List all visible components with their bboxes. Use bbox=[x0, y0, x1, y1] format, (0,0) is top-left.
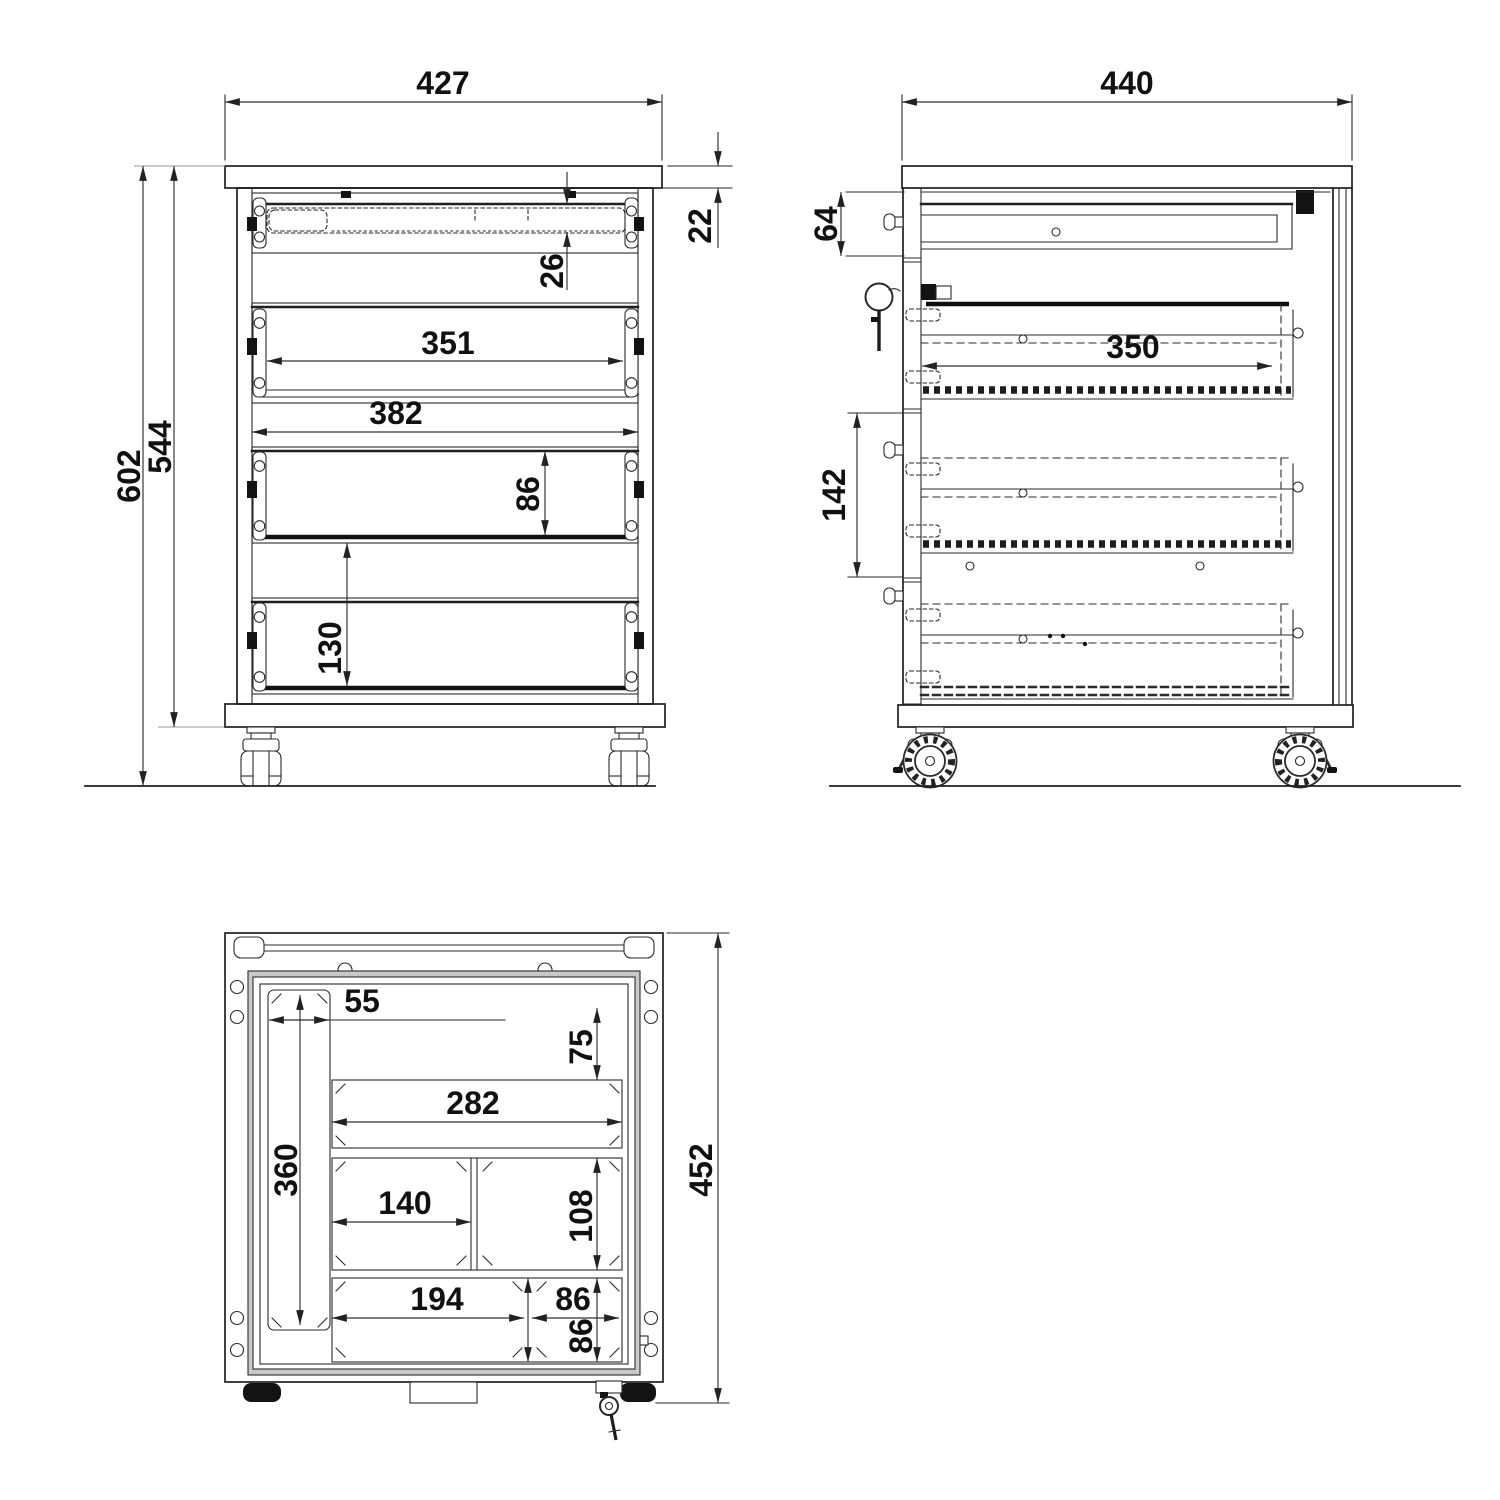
dim-front-drawer-pitch: 130 bbox=[312, 543, 348, 686]
side-base bbox=[898, 705, 1353, 727]
foot-pad bbox=[620, 1383, 656, 1402]
dim-label-top-slot-length: 360 bbox=[268, 1143, 304, 1196]
dim-label-top-140: 140 bbox=[378, 1185, 431, 1221]
dim-label-side-compartment-height: 142 bbox=[816, 468, 852, 521]
side-top-panel bbox=[902, 166, 1352, 188]
dim-label-side-depth: 440 bbox=[1100, 65, 1153, 101]
dim-label-front-drawer-pitch: 130 bbox=[312, 621, 348, 674]
top-view: 55 360 75 282 14 bbox=[225, 933, 729, 1440]
pen-tray-hidden-outline bbox=[267, 208, 625, 233]
screw-hole bbox=[1196, 562, 1204, 570]
caster-icon bbox=[609, 727, 649, 786]
dim-top-overall-depth: 452 bbox=[656, 933, 729, 1403]
dim-label-front-drawer-height: 86 bbox=[510, 476, 546, 512]
dim-label-top-slot-width: 55 bbox=[344, 983, 380, 1019]
foot-pad bbox=[243, 1383, 281, 1402]
caster-icon bbox=[241, 727, 281, 786]
lock-with-key-icon bbox=[596, 1381, 622, 1440]
dim-front-panel-thickness: 22 bbox=[656, 132, 732, 248]
side-drawer-box-1: 350 bbox=[906, 304, 1303, 399]
side-front-strip bbox=[903, 188, 921, 704]
technical-drawing-page: 427 602 544 22 bbox=[0, 0, 1500, 1500]
caster-icon bbox=[893, 727, 957, 788]
lock-icon bbox=[921, 284, 951, 300]
knob-icon bbox=[884, 214, 903, 230]
key-icon bbox=[866, 284, 901, 352]
dim-label-top-86w: 86 bbox=[555, 1281, 591, 1317]
dim-label-front-opening-width: 382 bbox=[369, 395, 422, 431]
front-top-panel bbox=[225, 166, 662, 188]
dim-label-front-carcass-height: 544 bbox=[142, 420, 178, 474]
side-back-panel bbox=[1333, 188, 1352, 704]
dim-label-top-depth: 452 bbox=[683, 1143, 719, 1196]
side-drawer-box-3 bbox=[906, 604, 1303, 699]
dim-label-top-108: 108 bbox=[563, 1189, 599, 1242]
dim-label-front-width: 427 bbox=[416, 65, 469, 101]
side-pencil-drawer bbox=[921, 190, 1330, 249]
front-drawer-3: 86 bbox=[247, 447, 644, 543]
dim-front-opening-width: 382 bbox=[252, 395, 638, 432]
knob-icon bbox=[884, 588, 903, 604]
front-pencil-drawer bbox=[247, 191, 644, 253]
dim-label-side-pencil-height: 64 bbox=[808, 206, 844, 242]
handle-notch bbox=[410, 1382, 477, 1403]
dim-label-top-86h: 86 bbox=[563, 1318, 599, 1354]
front-view: 427 602 544 22 bbox=[85, 65, 732, 786]
dim-side-compartment-height: 142 bbox=[816, 413, 903, 577]
dim-label-top-282: 282 bbox=[446, 1085, 499, 1121]
dim-side-overall-depth: 440 bbox=[902, 65, 1352, 160]
caster-icon bbox=[1274, 727, 1338, 788]
dim-label-top-front-margin: 75 bbox=[563, 1029, 599, 1065]
dim-label-side-drawer-depth: 350 bbox=[1106, 329, 1159, 365]
dim-label-front-panel-thickness: 22 bbox=[682, 208, 718, 244]
drawing-canvas: 427 602 544 22 bbox=[0, 0, 1500, 1500]
dim-label-front-drawer-width: 351 bbox=[421, 325, 474, 361]
side-view: 440 bbox=[808, 65, 1460, 788]
knob-icon bbox=[884, 442, 903, 458]
side-drawer-box-2 bbox=[906, 458, 1303, 553]
front-drawer-4 bbox=[247, 598, 644, 694]
front-drawer-2: 351 bbox=[247, 303, 644, 403]
front-base bbox=[225, 704, 665, 727]
dim-label-front-tray-depth: 26 bbox=[534, 253, 570, 289]
dim-front-overall-width: 427 bbox=[225, 65, 662, 160]
screw-hole bbox=[966, 562, 974, 570]
front-carcass bbox=[237, 188, 653, 704]
dim-front-overall-height: 602 544 bbox=[111, 166, 225, 786]
dim-label-top-194: 194 bbox=[410, 1281, 464, 1317]
